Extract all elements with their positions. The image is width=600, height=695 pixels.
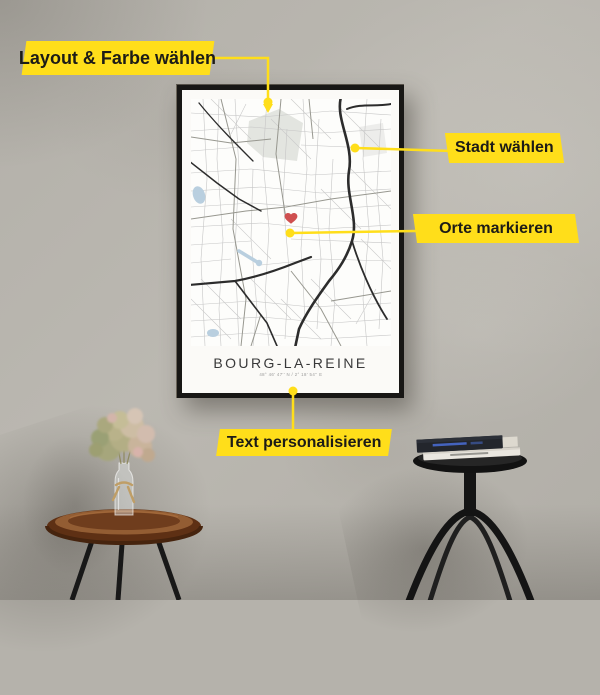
street-map-graphic (191, 99, 391, 346)
callout-layout-farbe[interactable]: Layout & Farbe wählen (22, 41, 215, 75)
poster-frame: BOURG-LA-REINE 48° 46' 47'' N / 2° 18' 5… (176, 84, 404, 398)
poster-coordinates: 48° 46' 47'' N / 2° 18' 54'' E (259, 373, 322, 377)
callout-stadt-label: Stadt wählen (455, 139, 554, 157)
city-map (191, 99, 391, 346)
callout-stadt-waehlen[interactable]: Stadt wählen (445, 133, 564, 163)
callout-text-personalisieren[interactable]: Text personalisieren (216, 429, 392, 456)
callout-orte-markieren[interactable]: Orte markieren (413, 214, 579, 243)
callout-text-label: Text personalisieren (227, 434, 381, 452)
map-poster: BOURG-LA-REINE 48° 46' 47'' N / 2° 18' 5… (182, 90, 399, 393)
callout-layout-label: Layout & Farbe wählen (19, 48, 216, 69)
poster-title: BOURG-LA-REINE (213, 355, 367, 371)
callout-orte-label: Orte markieren (439, 220, 553, 238)
